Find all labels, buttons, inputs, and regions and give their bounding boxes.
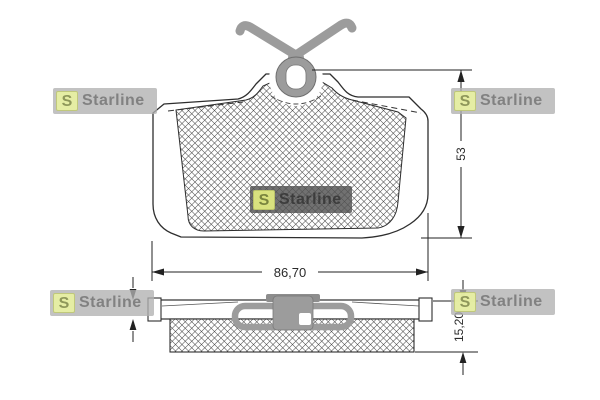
- arrowhead-bottom: [130, 319, 137, 330]
- starline-s-icon: S: [454, 292, 476, 312]
- starline-watermark-top-left: S Starline: [53, 88, 157, 114]
- side-backplate-right-cap: [419, 298, 432, 321]
- arrowhead-bottom: [457, 226, 464, 238]
- clip-arm-left: [240, 26, 299, 57]
- starline-wordmark: Starline: [480, 92, 543, 110]
- starline-watermark-bottom-left: S Starline: [50, 290, 154, 316]
- arrowhead-bottom: [460, 352, 467, 363]
- arrowhead-right: [416, 269, 428, 276]
- thickness-dimension-value: 15,20: [452, 312, 466, 342]
- side-view: [148, 294, 432, 352]
- brake-pad-technical-drawing: 86,70 53 15,20: [0, 0, 600, 400]
- arrowhead-top: [457, 70, 464, 82]
- starline-watermark-top-right: S Starline: [451, 88, 555, 114]
- starline-watermark-bottom-right: S Starline: [451, 289, 555, 315]
- clip-arm-right: [293, 23, 352, 57]
- starline-wordmark: Starline: [480, 293, 543, 311]
- starline-watermark-center: S Starline: [250, 186, 352, 213]
- width-dimension-value: 86,70: [274, 265, 307, 280]
- side-clip-slot: [299, 313, 311, 325]
- starline-s-icon: S: [53, 293, 75, 313]
- arrowhead-left: [152, 269, 164, 276]
- starline-s-icon: S: [56, 91, 78, 111]
- starline-s-icon: S: [253, 190, 275, 210]
- clip-ring-hole: [286, 65, 306, 89]
- starline-wordmark: Starline: [79, 294, 142, 312]
- height-dimension-value: 53: [454, 147, 468, 161]
- starline-s-icon: S: [454, 91, 476, 111]
- starline-wordmark: Starline: [82, 92, 145, 110]
- starline-wordmark: Starline: [279, 191, 342, 209]
